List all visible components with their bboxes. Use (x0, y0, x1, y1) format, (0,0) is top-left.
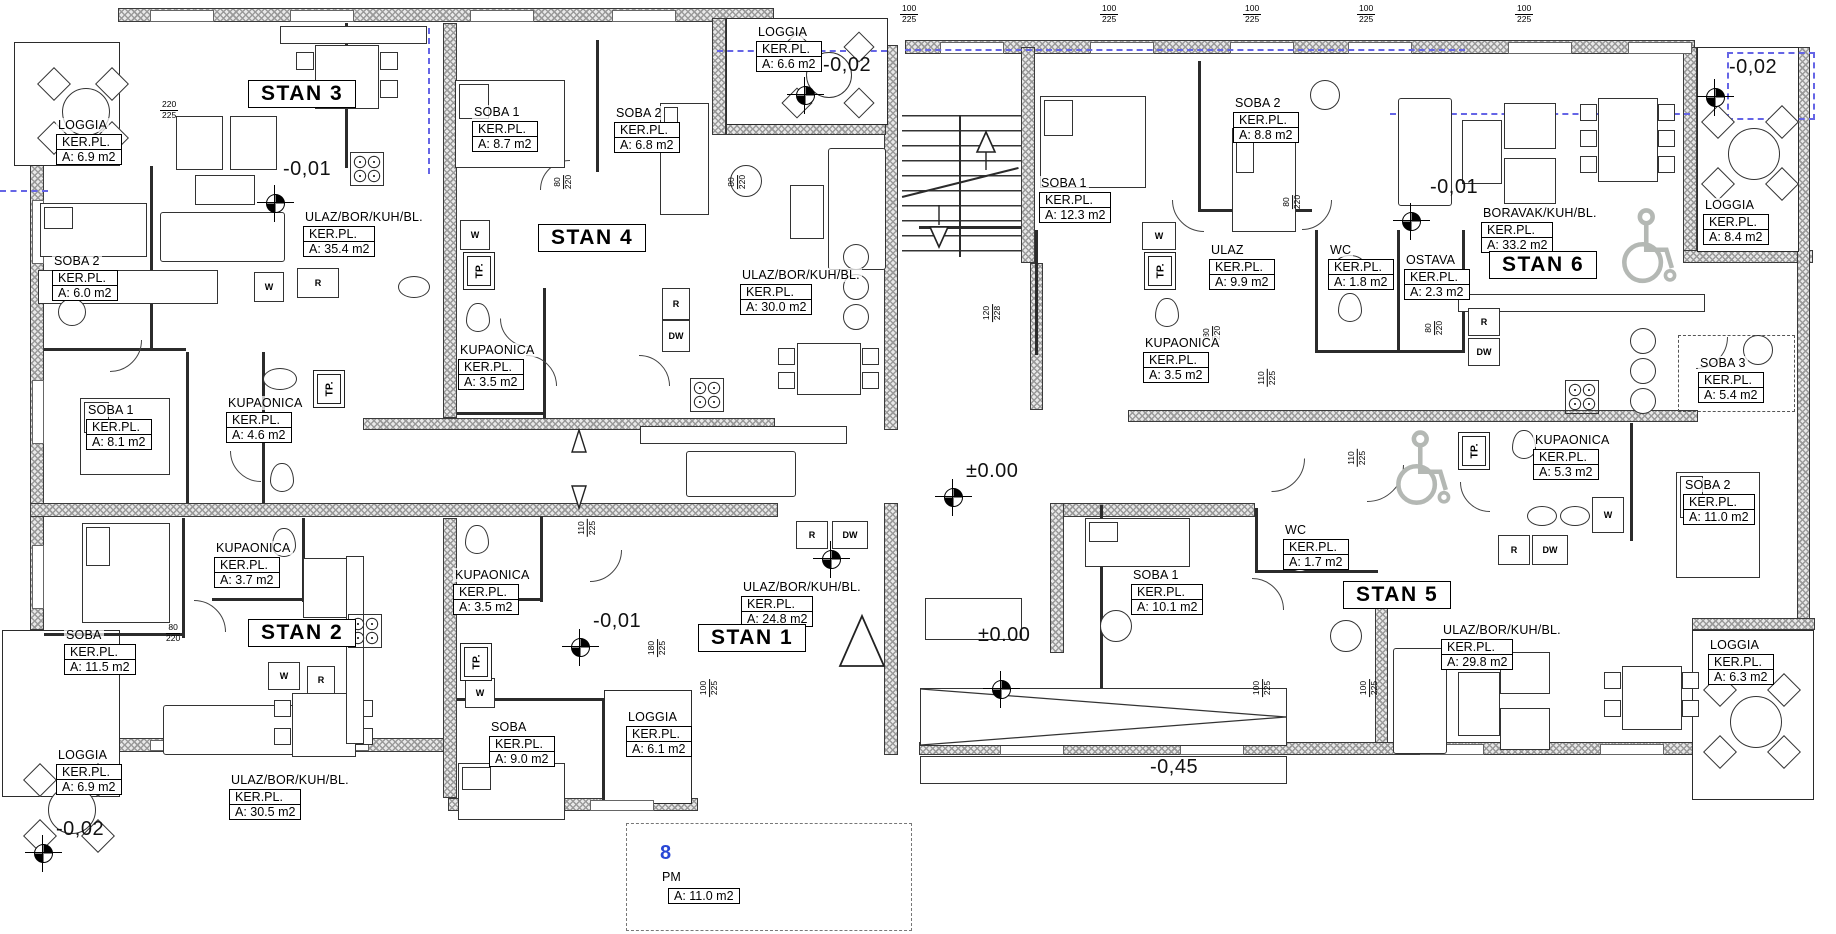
room-name: SOBA 2 (1233, 96, 1283, 110)
wall (1692, 618, 1815, 630)
room-area: A: 12.3 m2 (1040, 208, 1110, 222)
room-label: KUPAONICAKER.PL.A: 4.6 m2 (226, 394, 305, 443)
door-swing (1238, 425, 1305, 492)
appliance-w: W (1142, 222, 1176, 250)
storage-circle (1630, 358, 1656, 384)
partition (1035, 230, 1038, 355)
room-area: A: 8.8 m2 (1234, 128, 1298, 142)
room-area: A: 2.3 m2 (1405, 285, 1469, 299)
dim-bottom: 225 (1517, 14, 1531, 24)
room-area: A: 6.3 m2 (1709, 670, 1773, 684)
dim-bottom: 225 (1369, 681, 1379, 695)
elevation-marker-icon (1706, 88, 1725, 107)
room-finish: KER.PL. (57, 765, 121, 780)
room-finish: KER.PL. (1704, 215, 1768, 230)
dim-bottom: 225 (709, 681, 719, 695)
dining-table (797, 343, 861, 395)
room-area: A: 5.4 m2 (1699, 388, 1763, 402)
dimension-label: 100225 (1252, 679, 1272, 697)
door-arrow-icon (570, 484, 588, 510)
dining-chair (1682, 672, 1699, 689)
room-finish: KER.PL. (473, 122, 537, 137)
parking-number: 8 (660, 842, 671, 865)
sink (1560, 506, 1590, 526)
wall (1050, 503, 1255, 517)
room-area: A: 4.6 m2 (227, 428, 291, 442)
room-finish: KER.PL. (304, 227, 374, 242)
room-label: BORAVAK/KUH/BL.KER.PL.A: 33.2 m2 (1481, 204, 1599, 253)
office-chair (1310, 80, 1340, 110)
room-name: SOBA 1 (1039, 176, 1089, 190)
partition (543, 288, 546, 418)
dim-bottom: 225 (1359, 14, 1373, 24)
toilet (1155, 298, 1179, 327)
door-swing (500, 290, 557, 347)
wall (1128, 410, 1698, 422)
room-name: KUPAONICA (1533, 433, 1612, 447)
apartment-label: STAN 5 (1343, 581, 1451, 609)
appliance-r: R (1498, 535, 1530, 565)
room-label: OSTAVAKER.PL.A: 2.3 m2 (1404, 251, 1470, 300)
sofa (1393, 648, 1447, 754)
dining-chair (1658, 104, 1675, 121)
room-finish: KER.PL. (1144, 353, 1208, 368)
floor-plan: 8 PM A: 11.0 m2 (0, 0, 1836, 934)
wall (712, 18, 726, 135)
appliance-dw: DW (832, 521, 868, 549)
room-label: ULAZ/BOR/KUH/BL.KER.PL.A: 29.8 m2 (1441, 621, 1563, 670)
elevation-label: -0,01 (283, 158, 331, 181)
room-name: SOBA (64, 628, 104, 642)
partition (1315, 350, 1465, 353)
dining-chair (778, 372, 795, 389)
dimension-label: 110225 (1347, 449, 1367, 467)
elevation-marker-icon (796, 86, 815, 105)
entrance-step (920, 756, 1287, 784)
room-area: A: 6.0 m2 (53, 286, 117, 300)
bed (1085, 518, 1190, 567)
loggia-table (1730, 696, 1782, 748)
window (470, 10, 534, 22)
room-name: SOBA 2 (52, 254, 102, 268)
room-finish: KER.PL. (87, 420, 151, 435)
wheelchair-icon (1390, 428, 1456, 510)
dim-bottom: 225 (162, 110, 176, 120)
dimension-label: 110225 (577, 519, 597, 537)
partition (602, 700, 605, 800)
elevation-marker-icon (822, 550, 841, 569)
bed (458, 763, 565, 820)
dining-chair (1604, 672, 1621, 689)
appliance-w: W (460, 220, 490, 250)
room-finish: KER.PL. (215, 558, 279, 573)
room-area: A: 30.5 m2 (230, 805, 300, 819)
dimension-label: 80220 (166, 623, 180, 643)
stair-arrow-up-icon (975, 130, 997, 170)
dimension-label: 100225 (1359, 679, 1379, 697)
window (1230, 42, 1294, 54)
room-name: LOGGIA (1708, 638, 1761, 652)
storage-circle (1630, 328, 1656, 354)
room-label: KUPAONICAKER.PL.A: 3.5 m2 (453, 566, 532, 615)
coffee-table (195, 175, 255, 205)
room-label: SOBA 2KER.PL.A: 6.8 m2 (614, 104, 680, 153)
window (590, 800, 654, 811)
room-label: SOBAKER.PL.A: 11.5 m2 (64, 626, 136, 675)
room-finish: KER.PL. (1132, 585, 1202, 600)
wheelchair-icon (1617, 205, 1681, 289)
dining-chair (1604, 700, 1621, 717)
room-name: ULAZ/BOR/KUH/BL. (303, 210, 425, 224)
dimension-label: 80220 (1424, 321, 1444, 335)
entrance-ramp (920, 688, 1287, 746)
room-name: SOBA 2 (1683, 478, 1733, 492)
appliance-dw: DW (662, 320, 690, 352)
stair-arrow-down-icon (928, 205, 950, 249)
dining-chair (862, 372, 879, 389)
dimension-label: 80220 (727, 175, 747, 189)
room-label: LOGGIAKER.PL.A: 6.6 m2 (756, 23, 822, 72)
dimension-label: 100225 (1515, 4, 1533, 24)
elevation-marker-icon (1402, 212, 1421, 231)
wall (30, 503, 778, 517)
dim-bottom: 220 (1434, 321, 1444, 335)
room-label: KUPAONICAKER.PL.A: 3.7 m2 (214, 539, 293, 588)
room-name: LOGGIA (626, 710, 679, 724)
room-name: BORAVAK/KUH/BL. (1481, 206, 1599, 220)
room-name: KUPAONICA (1143, 336, 1222, 350)
room-label: SOBA 3KER.PL.A: 5.4 m2 (1698, 354, 1764, 403)
room-area: A: 8.1 m2 (87, 435, 151, 449)
room-finish: KER.PL. (1709, 655, 1773, 670)
elevation-marker-icon (266, 194, 285, 213)
room-label: LOGGIAKER.PL.A: 6.3 m2 (1708, 636, 1774, 685)
armchair (1500, 708, 1550, 750)
room-label: KUPAONICAKER.PL.A: 5.3 m2 (1533, 431, 1612, 480)
room-label: SOBA 2KER.PL.A: 6.0 m2 (52, 252, 118, 301)
window (290, 10, 354, 22)
elevation-marker-icon (34, 844, 53, 863)
room-name: SOBA 1 (86, 403, 136, 417)
room-finish: KER.PL. (53, 271, 117, 286)
sofa (160, 212, 285, 262)
room-area: A: 10.1 m2 (1132, 600, 1202, 614)
dim-bottom: 225 (657, 641, 667, 655)
room-name: LOGGIA (756, 25, 809, 39)
elevation-label: ±0.00 (978, 624, 1030, 647)
room-area: A: 9.9 m2 (1210, 275, 1274, 289)
room-area: A: 3.5 m2 (454, 600, 518, 614)
room-area: A: 11.0 m2 (1684, 510, 1754, 524)
elevation-label: -0,01 (1430, 176, 1478, 199)
window (1090, 42, 1154, 54)
room-area: A: 8.7 m2 (473, 137, 537, 151)
apartment-label: STAN 6 (1489, 251, 1597, 279)
office-chair (1330, 620, 1362, 652)
coffee-table (1458, 672, 1500, 736)
room-name: SOBA (489, 720, 529, 734)
window (1508, 42, 1572, 54)
door-swing (540, 160, 600, 220)
office-chair (1100, 610, 1132, 642)
tp-label: TP. (1154, 264, 1166, 279)
apartment-label: STAN 2 (248, 619, 356, 647)
room-area: A: 5.3 m2 (1534, 465, 1598, 479)
room-label: KUPAONICAKER.PL.A: 3.5 m2 (1143, 334, 1222, 383)
section-line (905, 49, 1465, 51)
room-label: SOBA 2KER.PL.A: 11.0 m2 (1683, 476, 1755, 525)
room-area: A: 3.7 m2 (215, 573, 279, 587)
elevation-marker-icon (571, 638, 590, 657)
room-area: A: 1.7 m2 (1284, 555, 1348, 569)
room-label: SOBA 2KER.PL.A: 8.8 m2 (1233, 94, 1299, 143)
room-label: LOGGIAKER.PL.A: 6.9 m2 (56, 746, 122, 795)
room-label: SOBA 1KER.PL.A: 12.3 m2 (1039, 174, 1111, 223)
dining-chair (1580, 104, 1597, 121)
window (1348, 42, 1412, 54)
dining-chair (380, 52, 398, 70)
door-swing (1220, 578, 1284, 642)
room-finish: KER.PL. (1684, 495, 1754, 510)
elevator-tp-unit: TP. (313, 370, 345, 408)
window (1628, 42, 1692, 54)
room-name: ULAZ/BOR/KUH/BL. (229, 773, 351, 787)
window (32, 380, 44, 444)
wall (1683, 47, 1697, 263)
room-label: WCKER.PL.A: 1.7 m2 (1283, 521, 1349, 570)
apartment-label: STAN 3 (248, 80, 356, 108)
tp-label: TP. (323, 382, 335, 397)
room-area: A: 6.6 m2 (757, 57, 821, 71)
window (32, 545, 44, 609)
room-name: OSTAVA (1404, 253, 1457, 267)
appliance-w: W (465, 678, 495, 708)
bathtub (303, 558, 347, 618)
elevation-label: -0,02 (823, 54, 871, 77)
toilet (465, 525, 489, 554)
dimension-label: 100225 (1100, 4, 1118, 24)
elevation-label: -0,01 (593, 610, 641, 633)
dining-chair (1580, 156, 1597, 173)
storage-circle (1630, 388, 1656, 414)
dimension-label: 100225 (699, 679, 719, 697)
dimension-label: 100225 (1243, 4, 1261, 24)
room-finish: KER.PL. (1534, 450, 1598, 465)
room-name: KUPAONICA (453, 568, 532, 582)
kitchen-counter (346, 556, 364, 744)
room-area: A: 11.5 m2 (65, 660, 135, 674)
armchair (1504, 103, 1556, 149)
room-name: SOBA 3 (1698, 356, 1748, 370)
door-arrow-icon (570, 428, 588, 454)
room-finish: KER.PL. (1284, 540, 1348, 555)
elevation-label: -0,02 (1729, 56, 1777, 79)
room-finish: KER.PL. (1405, 270, 1469, 285)
room-finish: KER.PL. (615, 123, 679, 138)
room-area: A: 30.0 m2 (741, 300, 811, 314)
elevation-label: -0,02 (56, 818, 104, 841)
room-area: A: 3.5 m2 (459, 375, 523, 389)
sink (398, 276, 430, 298)
dining-chair (1580, 130, 1597, 147)
room-area: A: 8.4 m2 (1704, 230, 1768, 244)
window (612, 10, 676, 22)
parking-area-label: A: 11.0 m2 (668, 888, 740, 904)
appliance-dw: DW (1532, 535, 1568, 565)
partition (1315, 230, 1318, 352)
staircase (902, 115, 1021, 257)
wall (443, 518, 457, 798)
dim-bottom: 225 (902, 14, 916, 24)
room-name: KUPAONICA (458, 343, 537, 357)
dimension-label: 120228 (982, 304, 1002, 322)
room-label: ULAZ/BOR/KUH/BL.KER.PL.A: 30.0 m2 (740, 266, 862, 315)
door-swing (1172, 168, 1236, 232)
elevator-tp-unit: TP. (463, 252, 495, 290)
partition (1198, 61, 1201, 211)
door-swing (78, 308, 142, 372)
appliance-r: R (307, 666, 335, 694)
dimension-label: 100225 (900, 4, 918, 24)
cooktop (350, 152, 384, 186)
room-label: SOBA 1KER.PL.A: 10.1 m2 (1131, 566, 1203, 615)
room-label: SOBA 1KER.PL.A: 8.7 m2 (472, 103, 538, 152)
room-finish: KER.PL. (1210, 260, 1274, 275)
partition (186, 352, 189, 503)
room-finish: KER.PL. (1329, 260, 1393, 275)
room-label: ULAZKER.PL.A: 9.9 m2 (1209, 241, 1275, 290)
dimension-label: 80220 (553, 175, 573, 189)
partition (150, 166, 153, 351)
room-finish: KER.PL. (230, 790, 300, 805)
window (150, 10, 214, 22)
room-label: SOBA 1KER.PL.A: 8.1 m2 (86, 401, 152, 450)
elevation-label: ±0.00 (966, 460, 1018, 483)
stair-stringer (959, 115, 961, 257)
partition (1255, 508, 1258, 572)
room-finish: KER.PL. (454, 585, 518, 600)
elevation-marker-icon (992, 680, 1011, 699)
appliance-r: R (796, 521, 828, 549)
apartment-label: STAN 4 (538, 224, 646, 252)
partition (596, 40, 599, 172)
dining-table (1622, 666, 1682, 730)
room-area: A: 33.2 m2 (1482, 238, 1552, 252)
armchair (1504, 158, 1556, 204)
toilet (1338, 293, 1362, 322)
door-swing (608, 355, 670, 417)
elevator-tp-unit: TP. (460, 643, 492, 681)
room-name: KUPAONICA (226, 396, 305, 410)
room-finish: KER.PL. (227, 413, 291, 428)
dim-bottom: 220 (1292, 195, 1302, 209)
room-label: WCKER.PL.A: 1.8 m2 (1328, 241, 1394, 290)
partition (1630, 423, 1633, 541)
dining-chair (380, 80, 398, 98)
partition (540, 516, 543, 602)
room-name: ULAZ/BOR/KUH/BL. (740, 268, 862, 282)
room-label: ULAZ/BOR/KUH/BL.KER.PL.A: 24.8 m2 (741, 578, 863, 627)
room-finish: KER.PL. (1699, 373, 1763, 388)
dimension-label: 80220 (1282, 195, 1302, 209)
room-area: A: 9.0 m2 (490, 752, 554, 766)
appliance-dw: DW (1468, 338, 1500, 366)
room-finish: KER.PL. (1040, 193, 1110, 208)
partition (212, 598, 304, 601)
window (940, 42, 1004, 54)
armchair (176, 116, 223, 170)
dining-chair (1682, 700, 1699, 717)
dimension-label: 180225 (647, 639, 667, 657)
partition (457, 412, 545, 415)
dimension-label: 100225 (1357, 4, 1375, 24)
room-name: LOGGIA (56, 748, 109, 762)
appliance-r: R (297, 268, 339, 298)
dining-table (1598, 98, 1658, 182)
room-name: SOBA 1 (1131, 568, 1181, 582)
apartment-label: STAN 1 (698, 624, 806, 652)
room-label: SOBAKER.PL.A: 9.0 m2 (489, 718, 555, 767)
cooktop (690, 378, 724, 412)
dim-bottom: 225 (586, 521, 596, 535)
room-label: KUPAONICAKER.PL.A: 3.5 m2 (458, 341, 537, 390)
toilet (466, 303, 490, 332)
elevation-label: -0,45 (1150, 756, 1198, 779)
section-line (428, 28, 430, 174)
dim-bottom: 225 (1102, 14, 1116, 24)
wall (1050, 503, 1064, 653)
dim-bottom: 225 (1245, 14, 1259, 24)
dining-chair (296, 52, 314, 70)
room-area: A: 6.8 m2 (615, 138, 679, 152)
toilet (270, 463, 294, 492)
room-name: ULAZ/BOR/KUH/BL. (741, 580, 863, 594)
dim-bottom: 225 (1356, 451, 1366, 465)
sink (263, 368, 297, 390)
room-finish: KER.PL. (741, 285, 811, 300)
bed (82, 523, 170, 623)
room-area: A: 3.5 m2 (1144, 368, 1208, 382)
dimension-label: 110225 (1257, 369, 1277, 387)
parking-code: PM (662, 870, 681, 884)
room-area: A: 6.9 m2 (57, 150, 121, 164)
appliance-r: R (1468, 308, 1500, 336)
room-finish: KER.PL. (1234, 113, 1298, 128)
elevator-tp-unit: TP. (1144, 252, 1176, 290)
partition (182, 518, 185, 638)
room-name: SOBA 2 (614, 106, 664, 120)
appliance-w: W (1592, 497, 1624, 533)
dim-bottom: 220 (737, 175, 747, 189)
room-name: LOGGIA (56, 118, 109, 132)
loggia-table (1728, 128, 1780, 180)
room-finish: KER.PL. (757, 42, 821, 57)
room-name: WC (1283, 523, 1308, 537)
elevator-tp-unit: TP. (1458, 432, 1490, 470)
elevation-marker-icon (944, 488, 963, 507)
room-finish: KER.PL. (490, 737, 554, 752)
room-finish: KER.PL. (627, 727, 691, 742)
room-name: KUPAONICA (214, 541, 293, 555)
tp-label: TP. (473, 264, 485, 279)
room-label: LOGGIAKER.PL.A: 6.1 m2 (626, 708, 692, 757)
room-area: A: 35.4 m2 (304, 242, 374, 256)
room-finish: KER.PL. (742, 597, 812, 612)
dimension-label: 220225 (160, 100, 178, 120)
cooktop (1565, 380, 1599, 414)
section-line (0, 190, 48, 192)
tp-label: TP. (470, 655, 482, 670)
